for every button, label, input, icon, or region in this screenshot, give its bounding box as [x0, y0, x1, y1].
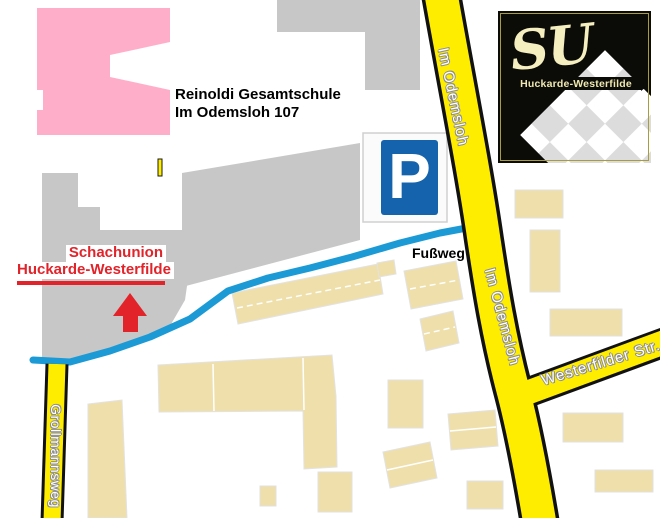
building-south-center [318, 472, 352, 512]
club-label-line2: Huckarde-Westerfilde [14, 262, 174, 279]
club-label-underline [17, 281, 165, 285]
building-east-2 [595, 470, 653, 492]
club-logo: Huckarde-Westerfilde SU [498, 11, 651, 163]
building-tall-west [88, 400, 127, 518]
club-label-line1: Schachunion [66, 245, 166, 262]
club-label: Schachunion Huckarde-Westerfilde [14, 245, 166, 279]
building-annex [377, 260, 396, 277]
building-tall-center [388, 380, 423, 428]
building-right-3 [550, 309, 622, 336]
building-east-1 [563, 413, 623, 442]
building-south-east [467, 481, 503, 509]
road-stub [158, 159, 162, 176]
school-name: Reinoldi Gesamtschule [175, 86, 341, 104]
club-directions-map: Reinoldi Gesamtschule Im Odemsloh 107 Sc… [0, 0, 660, 518]
parking-sign: P [381, 140, 438, 215]
school-address-label: Reinoldi Gesamtschule Im Odemsloh 107 [175, 86, 341, 122]
road-label-grollmannsweg: Grollmannsweg [48, 404, 64, 508]
building-l-shape [158, 355, 337, 469]
building-right-1 [515, 190, 563, 218]
building-right-2 [530, 230, 560, 292]
school-building-pink [37, 8, 170, 135]
building-gray-north [277, 0, 420, 90]
school-street: Im Odemsloh 107 [175, 104, 341, 122]
footpath-label: Fußweg [412, 245, 465, 261]
logo-initials: SU [507, 11, 595, 83]
building-small-square [260, 486, 276, 506]
